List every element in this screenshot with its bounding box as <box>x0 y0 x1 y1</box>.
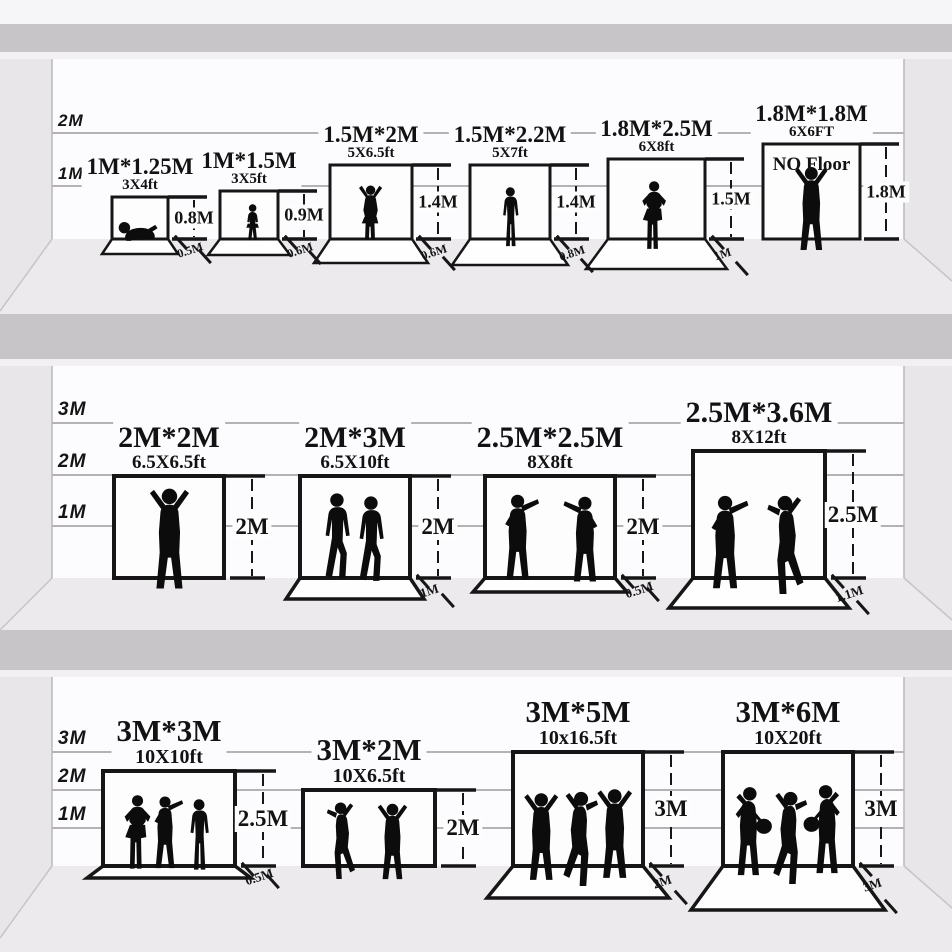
backdrop-title: 2.5M*2.5M <box>477 422 624 453</box>
backdrop-frame <box>303 790 435 866</box>
figure-standing-man <box>182 799 216 873</box>
backdrop-title: 1.5M*2.2M <box>454 123 566 147</box>
wall-scale-label: 1M <box>54 502 90 524</box>
figure-man-arm-up <box>765 494 811 594</box>
wall-top-strip <box>0 52 952 59</box>
figure-child-arms-up <box>354 183 387 241</box>
figure-gesturing-man <box>560 495 602 585</box>
height-dimension-label: 2.5M <box>235 806 291 832</box>
height-dimension-label: 2M <box>418 514 457 540</box>
backdrop-subtitle: 8X8ft <box>477 453 624 473</box>
height-dimension-label: 3M <box>861 796 900 822</box>
backdrop-title-block: 2M*2M6.5X6.5ft <box>113 422 225 473</box>
height-dimension-label: 2M <box>443 815 482 841</box>
backdrop-subtitle: 6.5X10ft <box>304 453 406 473</box>
height-dimension-label: 3M <box>651 796 690 822</box>
wall-divider <box>0 24 952 52</box>
figure-man-hands-on-hips <box>638 181 670 251</box>
wall-scale-label: 2M <box>54 111 88 131</box>
backdrop-subtitle: 5X6.5ft <box>323 146 418 162</box>
backdrop-title-block: 1.5M*2.2M5X7ft <box>449 123 571 163</box>
height-dimension-label: 2.5M <box>825 502 881 528</box>
figure-standing-child <box>496 187 525 249</box>
backdrop-title-block: 2.5M*3.6M8X12ft <box>681 397 838 448</box>
backdrop-title-block: 3M*5M10x16.5ft <box>520 696 635 749</box>
backdrop-title-block: 3M*2M10X6.5ft <box>311 734 426 787</box>
backdrop-size-chart: 2M1M1M*1.25M3X4ft0.8M0.5M1M*1.5M3X5ft0.9… <box>0 0 952 952</box>
backdrop-title-block: 3M*6M10X20ft <box>730 696 845 749</box>
backdrop-title: 2.5M*3.6M <box>686 397 833 428</box>
figure-pointing-man <box>707 494 752 592</box>
backdrop-subtitle: 6X8ft <box>600 140 712 156</box>
wall-divider <box>0 314 952 359</box>
wall-scale-label: 3M <box>54 728 90 750</box>
backdrop-title: 3M*5M <box>525 696 630 728</box>
backdrop-title: 3M*6M <box>735 696 840 728</box>
figure-man-arms-raised <box>374 801 411 881</box>
figure-gesturing-man <box>501 493 543 583</box>
wall-divider <box>0 630 952 670</box>
backdrop-title: 1M*1.5M <box>201 149 296 173</box>
height-dimension-label: 2M <box>232 514 271 540</box>
figure-pointing-man <box>151 795 186 871</box>
height-dimension-label: 1.5M <box>708 189 754 210</box>
height-dimension-label: 1.8M <box>863 181 909 202</box>
backdrop-title-block: 1M*1.25M3X4ft <box>82 155 199 195</box>
backdrop-title: 3M*2M <box>316 734 421 766</box>
wall-scale-label: 1M <box>54 804 90 826</box>
backdrop-title-block: 2.5M*2.5M8X8ft <box>472 422 629 473</box>
backdrop-subtitle: 6X6FT <box>755 125 867 141</box>
backdrop-title-block: 1M*1.5M3X5ft <box>196 149 301 189</box>
height-dimension-label: 0.9M <box>281 205 327 226</box>
backdrop-subtitle: 5X7ft <box>454 146 566 162</box>
backdrop-subtitle: 10X6.5ft <box>316 766 421 787</box>
backdrop-subtitle: 8X12ft <box>686 428 833 448</box>
backdrop-title: 1.8M*2.5M <box>600 117 712 141</box>
figure-dancing-man <box>325 801 361 879</box>
figure-crawling-baby <box>117 218 163 242</box>
height-dimension-label: 0.8M <box>171 208 217 229</box>
backdrop-title-block: 1.8M*2.5M6X8ft <box>595 117 717 157</box>
wall-scale-label: 3M <box>54 399 90 421</box>
backdrop-title-block: 1.5M*2M5X6.5ft <box>318 123 423 163</box>
backdrop-subtitle: 10X10ft <box>116 747 221 768</box>
backdrop-subtitle: 3X5ft <box>201 172 296 188</box>
height-dimension-label: 1.4M <box>415 192 461 213</box>
floor-mat <box>669 578 849 608</box>
backdrop-title-block: 1.8M*1.8M6X6FT <box>750 102 872 142</box>
figure-man-arms-raised <box>145 485 194 591</box>
figure-walking-man <box>349 496 391 588</box>
figure-toddler <box>241 204 263 242</box>
height-dimension-label: 1.4M <box>553 192 599 213</box>
floor-mat <box>314 239 428 263</box>
backdrop-title: 1.5M*2M <box>323 123 418 147</box>
backdrop-title-block: 2M*3M6.5X10ft <box>299 422 411 473</box>
figure-guitarist <box>803 784 845 876</box>
no-floor-note: NO Floor <box>773 154 851 176</box>
backdrop-subtitle: 6.5X6.5ft <box>118 453 220 473</box>
backdrop-title-block: 3M*3M10X10ft <box>111 715 226 768</box>
backdrop-subtitle: 10x16.5ft <box>525 728 630 749</box>
backdrop-title: 2M*3M <box>304 422 406 453</box>
wall-scale-label: 2M <box>54 451 90 473</box>
floor-mat <box>473 578 627 592</box>
figure-man-hands-on-hips <box>120 795 155 871</box>
backdrop-title: 1M*1.25M <box>87 155 194 179</box>
height-dimension-label: 2M <box>623 514 662 540</box>
figure-man-arms-raised <box>593 786 636 880</box>
backdrop-title: 3M*3M <box>116 715 221 747</box>
wall-scale-label: 2M <box>54 766 90 788</box>
wall-top-strip <box>0 670 952 677</box>
figure-man-arms-raised <box>791 164 832 252</box>
backdrop-subtitle: 3X4ft <box>87 178 194 194</box>
backdrop-title: 1.8M*1.8M <box>755 102 867 126</box>
backdrop-subtitle: 10X20ft <box>735 728 840 749</box>
backdrop-title: 2M*2M <box>118 422 220 453</box>
wall-top-strip <box>0 359 952 366</box>
